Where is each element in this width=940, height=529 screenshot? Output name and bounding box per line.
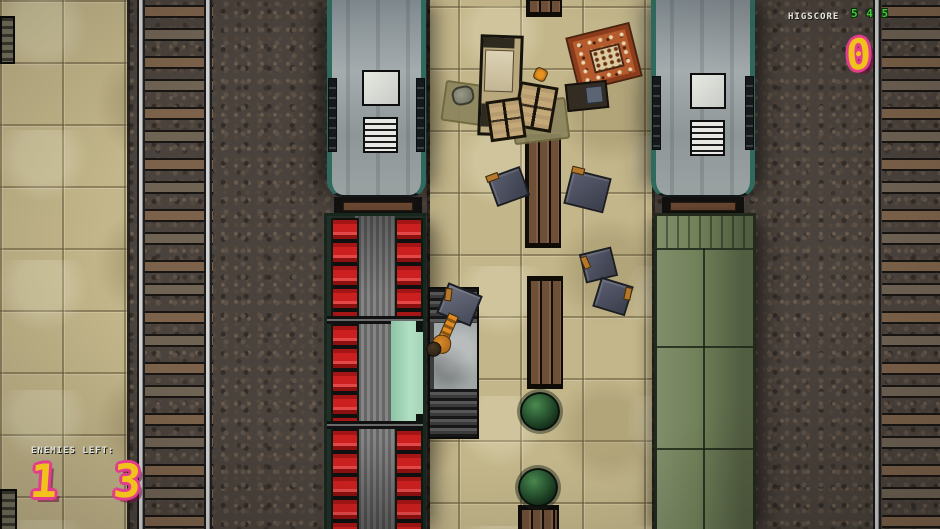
- bench-middle: [527, 276, 563, 389]
- green-car-ribbing: [657, 216, 753, 250]
- aisle-shading: [355, 216, 395, 529]
- hand-truck-plate: [585, 85, 604, 104]
- bench-top-edge: [526, 0, 562, 17]
- red-car-open-floor: [391, 321, 423, 425]
- red-seats-mid-left: [331, 324, 359, 421]
- left-train-red-car: [324, 213, 426, 529]
- right-train-coupling: [662, 197, 744, 213]
- left-train-roof-hatch: [362, 70, 400, 106]
- platform-fixture: [0, 489, 17, 529]
- right-train-roof-vent: [690, 120, 725, 156]
- green-barrel-lower: [518, 468, 558, 507]
- coupling-plank: [670, 202, 736, 211]
- door-jamb-top: [416, 321, 423, 332]
- right-track-rail-west: [873, 0, 881, 529]
- green-car-panel-line: [657, 346, 753, 348]
- wooden-crate: [485, 97, 526, 143]
- score-value: 0: [845, 32, 872, 78]
- left-track-ties: [143, 0, 213, 529]
- hand-truck: [565, 80, 610, 112]
- right-train-door-east: [745, 76, 754, 150]
- right-train-roof-hatch: [690, 73, 726, 109]
- red-seats-top-right: [395, 218, 423, 316]
- left-track-rail-east: [204, 0, 212, 529]
- green-barrel-upper: [520, 392, 560, 431]
- right-train-silver-car: [651, 0, 755, 197]
- left-train-coupling: [334, 197, 422, 213]
- highscore-label: HIGSCORE: [788, 12, 839, 22]
- platform-fixture: [0, 16, 15, 64]
- left-track-rail-west: [137, 0, 145, 529]
- rug-medallion: [589, 43, 625, 73]
- right-train-door-west: [652, 76, 661, 150]
- red-car-divider-2: [327, 421, 423, 429]
- stairs-lower-flight: [430, 389, 477, 437]
- red-seats-bottom-left: [331, 429, 359, 529]
- cart-top-band: [483, 37, 514, 48]
- right-track-ties: [882, 0, 940, 529]
- highscore-top-value: 5 4 5: [851, 7, 889, 20]
- game-scene[interactable]: HIGSCORE 5 4 5 0 ENEMIES LEFT: 1 3: [0, 0, 940, 529]
- green-car-panel-line: [657, 448, 753, 450]
- bench-upper: [525, 134, 561, 248]
- briefcase-handle: [444, 288, 453, 302]
- bench-bottom-edge: [518, 505, 559, 529]
- left-train-silver-car: [327, 0, 426, 197]
- right-train-green-car: [654, 213, 756, 529]
- red-seats-bottom-right: [395, 429, 423, 529]
- coupling-plank: [343, 202, 413, 211]
- left-train-roof-vent: [363, 117, 398, 153]
- cart-panel: [484, 49, 514, 92]
- green-car-panel-line: [703, 248, 705, 529]
- red-seats-top-left: [331, 218, 359, 316]
- briefcase-handle: [580, 255, 592, 270]
- left-train-door-west: [328, 78, 337, 152]
- left-train-door-east: [416, 78, 425, 152]
- red-car-aisle: [355, 216, 395, 529]
- enemies-left-value: 1 3: [28, 458, 156, 504]
